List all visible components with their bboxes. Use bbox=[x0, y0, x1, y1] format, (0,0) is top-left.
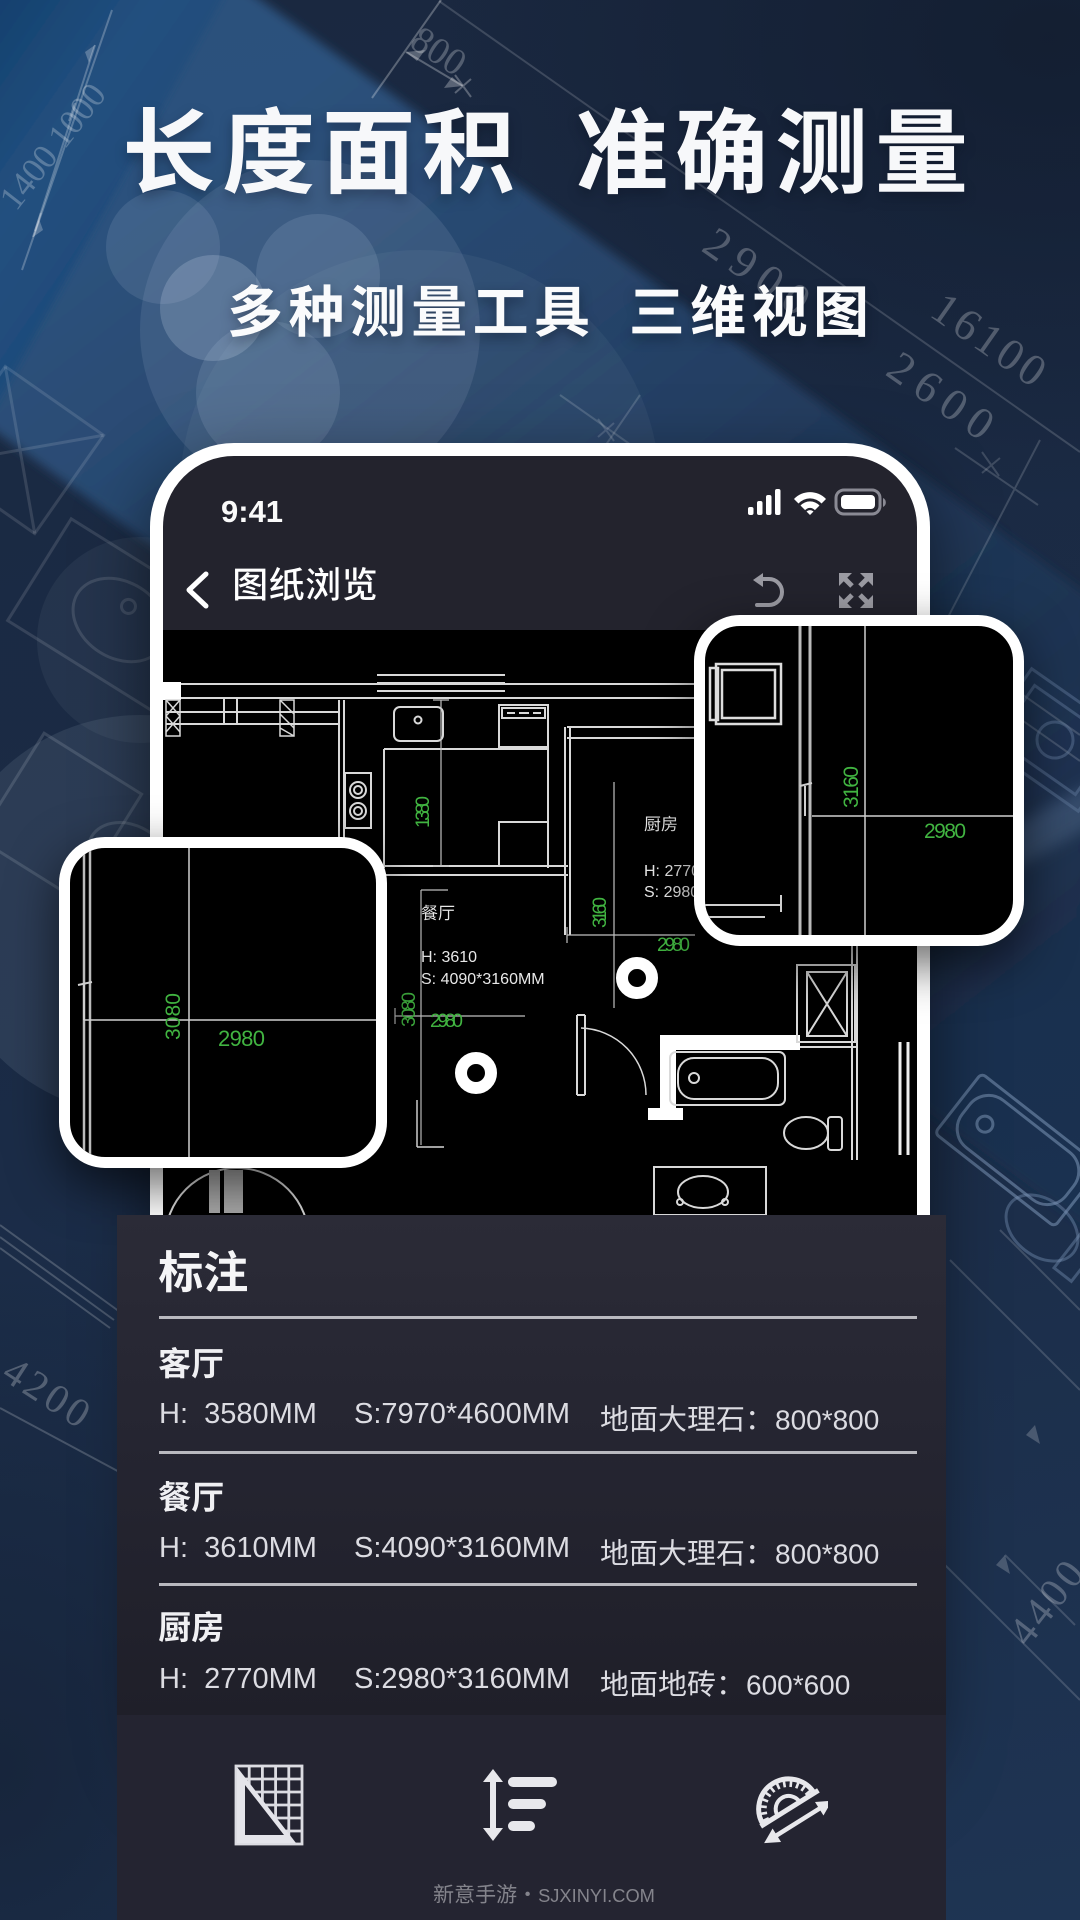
svg-text:3080: 3080 bbox=[399, 992, 420, 1027]
svg-text:800*800: 800*800 bbox=[775, 1538, 879, 1569]
svg-text:600*600: 600*600 bbox=[746, 1669, 850, 1700]
svg-text:S: 4090*3160MM: S: 4090*3160MM bbox=[421, 971, 545, 988]
svg-text:3160: 3160 bbox=[590, 897, 611, 928]
svg-text:2980: 2980 bbox=[657, 935, 690, 956]
svg-text:800*800: 800*800 bbox=[775, 1404, 879, 1435]
svg-text:SJXINYI.COM: SJXINYI.COM bbox=[538, 1885, 655, 1906]
svg-text:2980: 2980 bbox=[218, 1026, 265, 1051]
svg-text:H: 3610: H: 3610 bbox=[421, 949, 477, 966]
svg-text:1380: 1380 bbox=[413, 796, 434, 828]
svg-text:2980: 2980 bbox=[924, 820, 966, 843]
svg-text:3160: 3160 bbox=[840, 766, 863, 808]
svg-text:3080: 3080 bbox=[162, 993, 185, 1040]
svg-text:2980: 2980 bbox=[430, 1011, 463, 1032]
